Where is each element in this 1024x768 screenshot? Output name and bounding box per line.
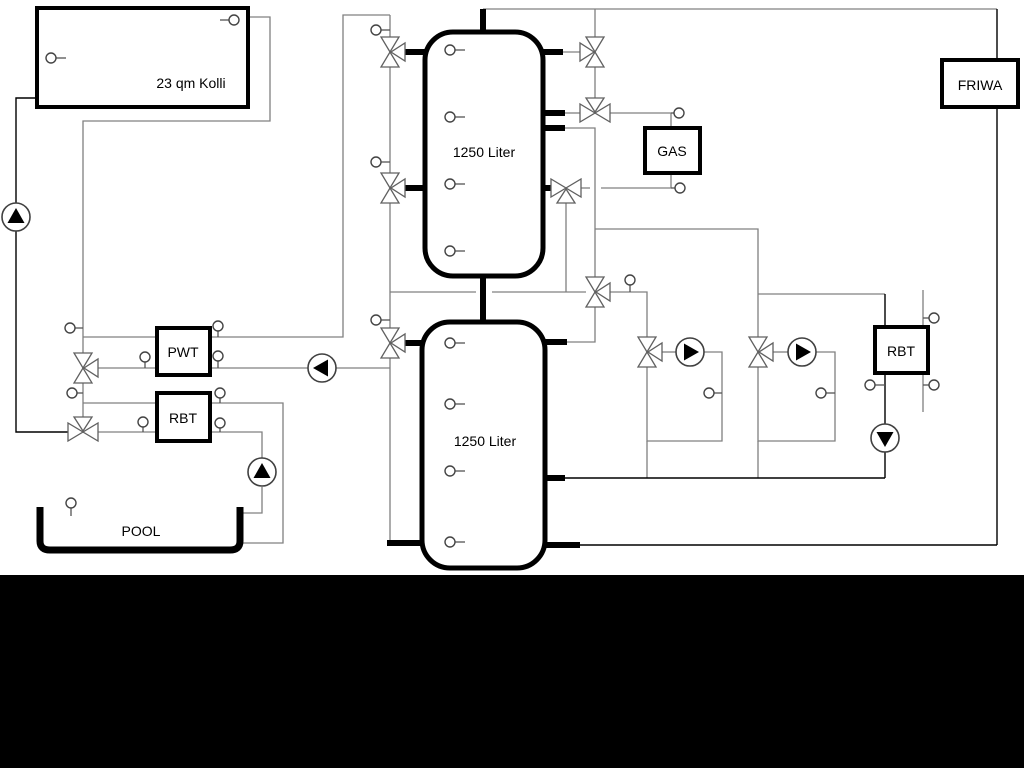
tank-charge-valve-mid-icon <box>381 173 405 203</box>
tank-sensor-icon <box>445 399 455 409</box>
tank-charge-valve-upper-icon <box>381 37 405 67</box>
tank-sensor-icon <box>445 45 455 55</box>
bottom-black-band <box>0 575 1024 768</box>
collector-label: 23 qm Kolli <box>156 75 225 91</box>
heating-circuit2-pump-icon <box>788 338 816 366</box>
tank-sensor-icon <box>445 537 455 547</box>
pwt-sensor-icon <box>213 351 223 361</box>
stub-circuit-sensor-icon <box>929 313 939 323</box>
rbt-right-sensor-icon <box>865 380 875 390</box>
pipe-sensor-icon <box>371 25 381 35</box>
circuit1-return-sensor-icon <box>704 388 714 398</box>
circuit2-return-sensor-icon <box>816 388 826 398</box>
gas-flow-sensor-icon <box>674 108 684 118</box>
rbt-left-sensor-icon <box>215 388 225 398</box>
pool-label: POOL <box>122 523 161 539</box>
rbt-left-sensor-icon <box>138 417 148 427</box>
lower-tank-label: 1250 Liter <box>454 433 517 449</box>
rbt-left-sensor-icon <box>67 388 77 398</box>
rbt-right-pump-icon <box>871 424 899 452</box>
pwt-sensor-icon <box>213 321 223 331</box>
pipe-sensor-icon <box>371 157 381 167</box>
pool-sensor-icon <box>66 498 76 508</box>
solar-pump-icon <box>2 203 30 231</box>
upper-tank-label: 1250 Liter <box>453 144 516 160</box>
rbt-right-label: RBT <box>887 343 915 359</box>
rbt-left-label: RBT <box>169 410 197 426</box>
distribution-sensor-icon <box>625 275 635 285</box>
collector-top-sensor-icon <box>229 15 239 25</box>
friwa-label: FRIWA <box>958 77 1003 93</box>
tank-sensor-icon <box>445 179 455 189</box>
tank-sensor-icon <box>445 246 455 256</box>
distribution-valve-icon <box>586 277 610 307</box>
pwt-sensor-icon <box>65 323 75 333</box>
heating-circuit1-pump-icon <box>676 338 704 366</box>
solar-pwt-valve-icon <box>74 353 98 383</box>
tank-sensor-icon <box>445 112 455 122</box>
solar-pool-valve-icon <box>68 417 98 441</box>
gas-label: GAS <box>657 143 687 159</box>
schematic-canvas: 23 qm Kolli 1250 Liter 1250 Liter GAS FR… <box>0 0 1024 768</box>
pwt-label: PWT <box>167 344 199 360</box>
stub-circuit-sensor-icon <box>929 380 939 390</box>
tank-sensor-icon <box>445 338 455 348</box>
pwt-sensor-icon <box>140 352 150 362</box>
tank-sensor-icon <box>445 466 455 476</box>
pool-pump-icon <box>248 458 276 486</box>
collector-sensor-icon <box>46 53 56 63</box>
gas-supply-valve-icon <box>580 98 610 122</box>
gas-return-valve-icon <box>551 179 581 203</box>
tank-top-outlet-valve-icon <box>580 37 604 67</box>
heating-circuit1-mixing-valve-icon <box>638 337 662 367</box>
pwt-secondary-pump-icon <box>308 354 336 382</box>
schematic-svg: 23 qm Kolli 1250 Liter 1250 Liter GAS FR… <box>0 0 1024 768</box>
gas-return-sensor-icon <box>675 183 685 193</box>
heating-circuit2-mixing-valve-icon <box>749 337 773 367</box>
pipe-sensor-icon <box>371 315 381 325</box>
solar-collector-box <box>37 8 248 107</box>
rbt-left-sensor-icon <box>215 418 225 428</box>
tank-charge-valve-lower-icon <box>381 328 405 358</box>
